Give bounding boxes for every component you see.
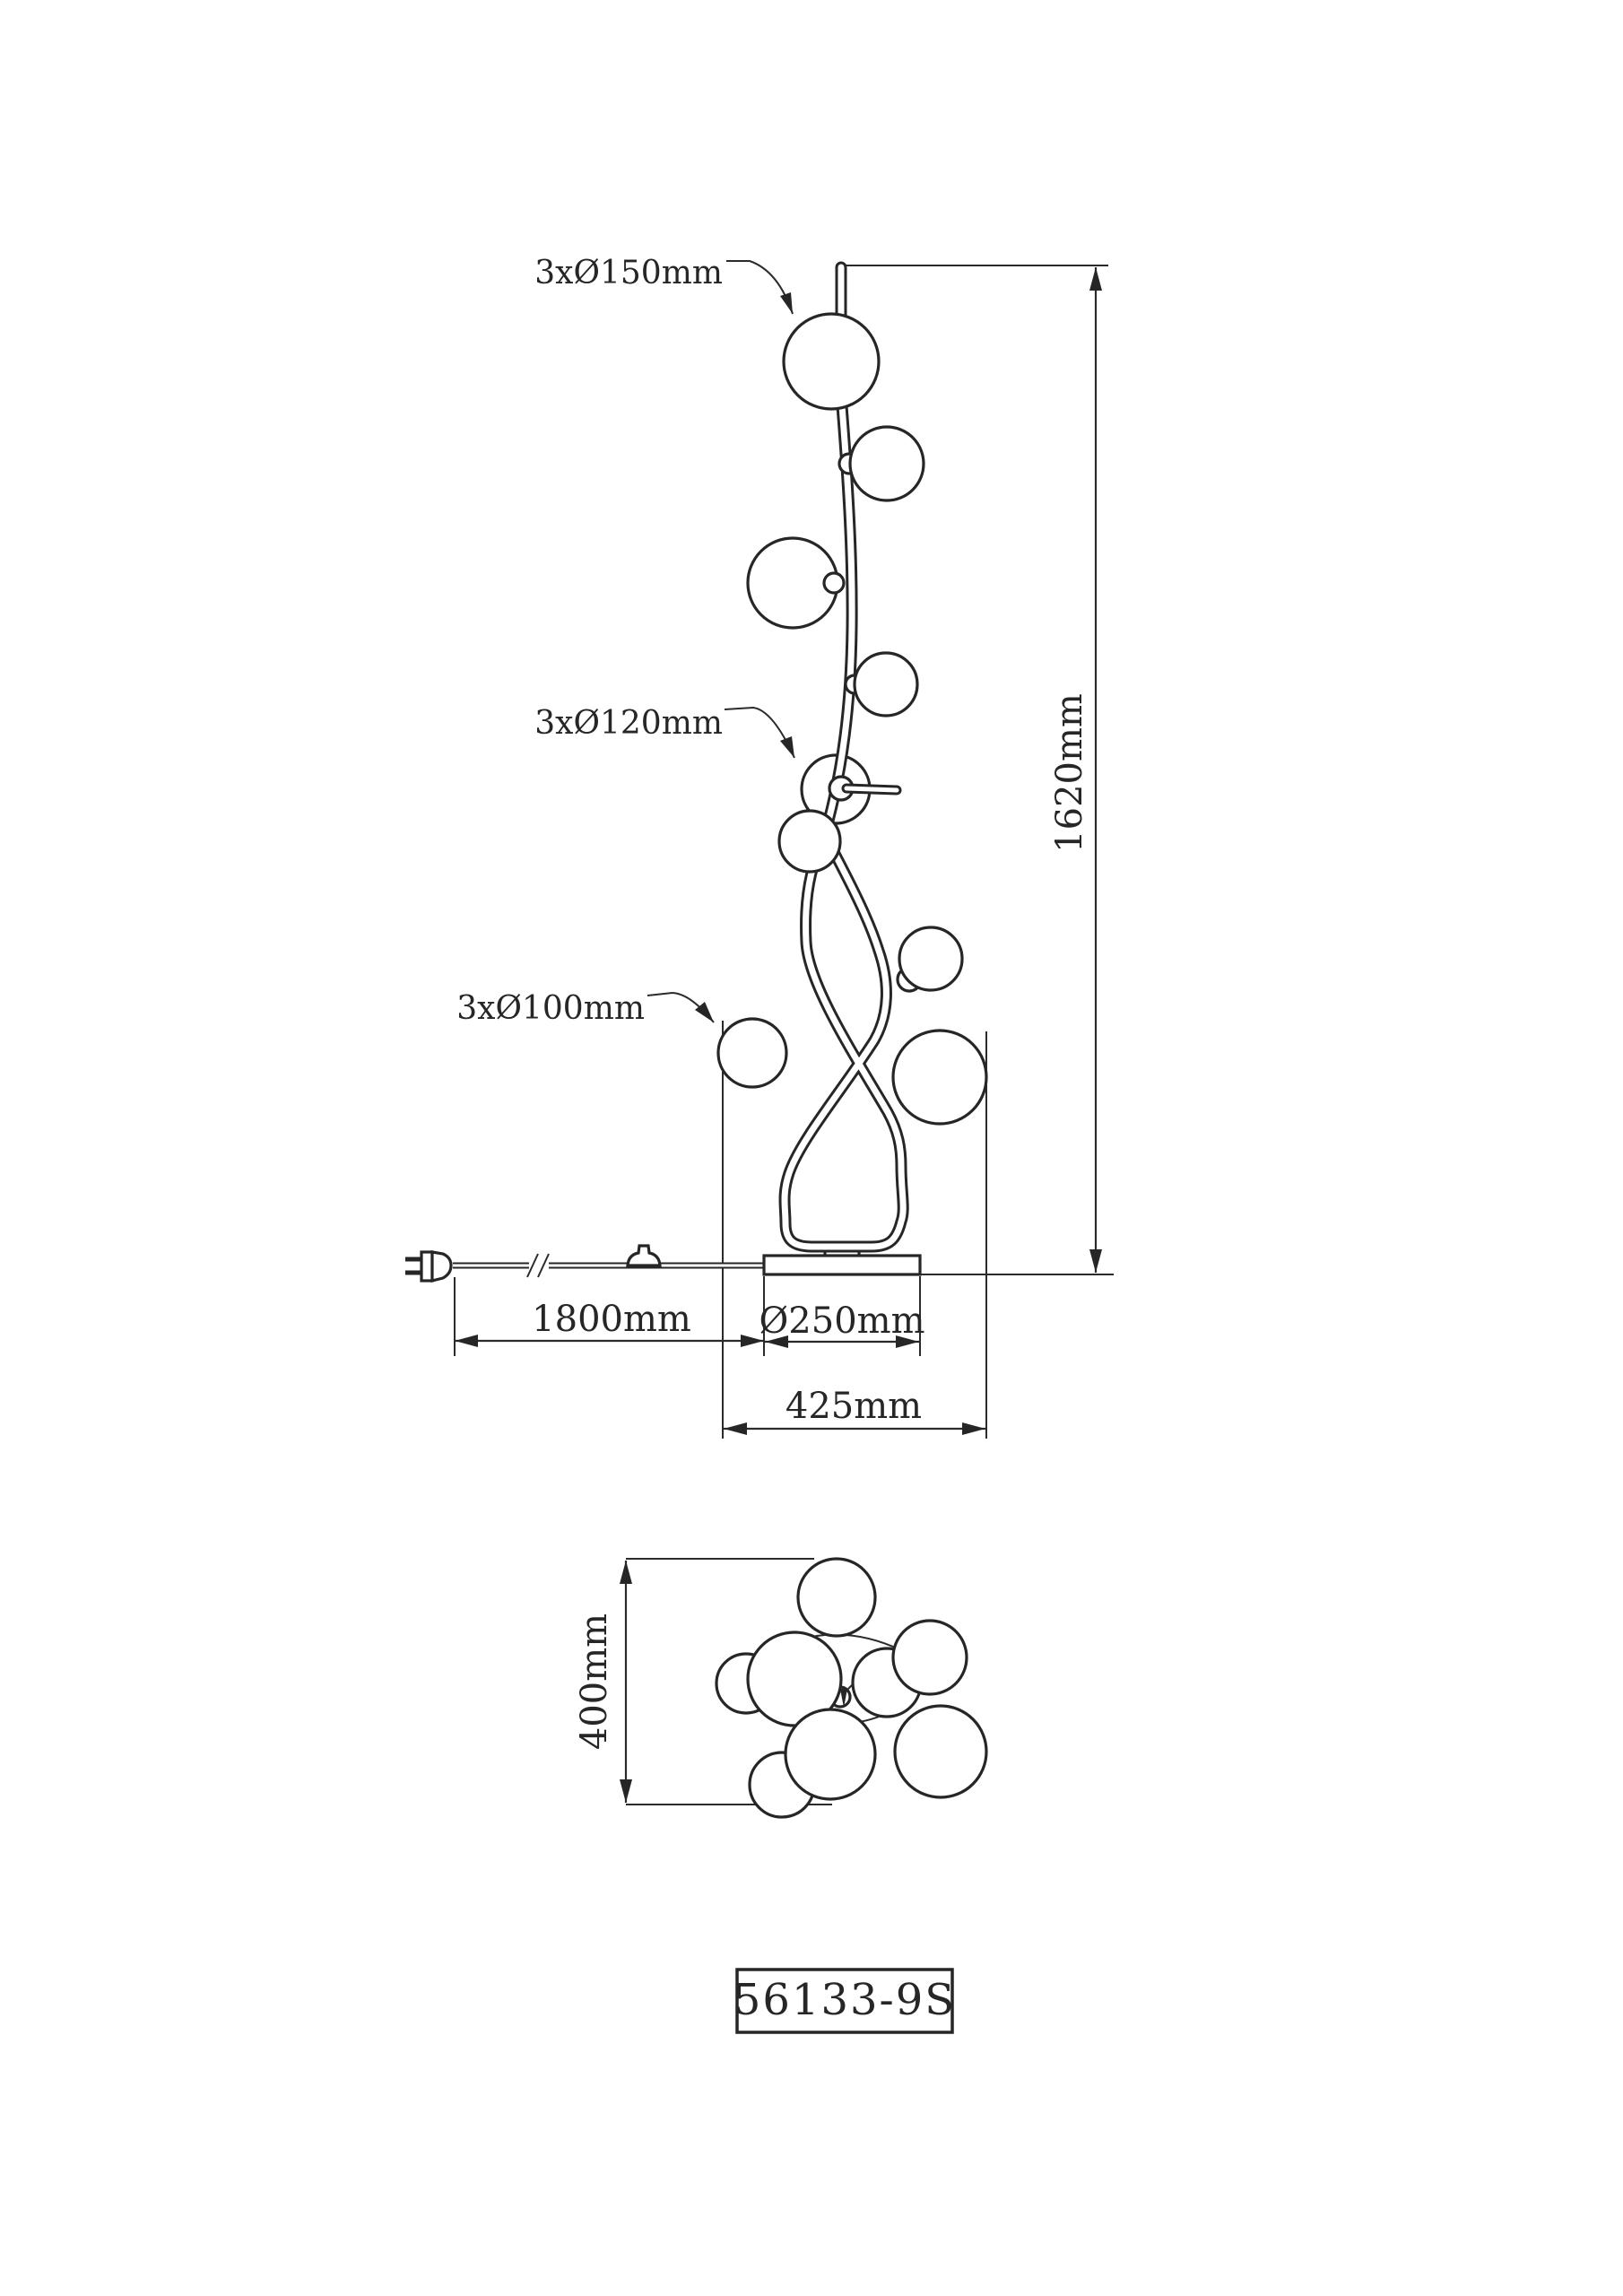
model-label: 56133-9S: [733, 1970, 956, 2032]
glass-sphere-150: [784, 314, 879, 409]
model-number-text: 56133-9S: [733, 1975, 956, 2025]
arrowhead-right-icon: [962, 1422, 985, 1435]
top-view: 400mm: [574, 1559, 986, 1817]
callout-100: 3xØ100mm: [456, 990, 714, 1027]
glass-sphere-top: [798, 1559, 875, 1636]
label-150-text: 3xØ150mm: [534, 255, 723, 291]
technical-drawing-page: 1620mm 1800mm Ø250mm 425mm: [0, 0, 1623, 2296]
glass-sphere-top: [893, 1621, 967, 1694]
arrowhead-left-icon: [455, 1335, 478, 1347]
front-view: 1620mm 1800mm Ø250mm 425mm: [405, 255, 1114, 1439]
lamp-pole: [785, 267, 903, 1247]
width-dim-text: 425mm: [785, 1386, 922, 1427]
arrowhead-down-icon: [620, 1779, 632, 1803]
glass-sphere-100: [899, 927, 962, 990]
glass-sphere-top: [785, 1709, 875, 1799]
lamp-arm-rod: [846, 788, 897, 790]
cable-dimension: 1800mm: [455, 1299, 764, 1347]
inline-switch: [628, 1246, 660, 1265]
label-120-text: 3xØ120mm: [534, 705, 723, 742]
glass-sphere-100: [718, 1019, 786, 1087]
glass-sphere-120: [850, 427, 924, 500]
label-100-text: 3xØ100mm: [456, 990, 645, 1027]
power-plug-icon: [432, 1252, 451, 1281]
width-dimension: 425mm: [724, 1386, 985, 1435]
leader-arrowhead-icon: [780, 736, 794, 758]
glass-sphere-150: [893, 1031, 986, 1124]
arrowhead-up-icon: [1089, 267, 1102, 291]
height-dim-text: 1620mm: [1049, 693, 1090, 853]
glass-sphere-100: [855, 653, 917, 716]
leader-line: [725, 708, 794, 758]
plug-body: [421, 1252, 432, 1281]
base-diameter-dimension: Ø250mm: [759, 1300, 925, 1348]
base-dim-text: Ø250mm: [759, 1300, 925, 1342]
arrowhead-down-icon: [1089, 1249, 1102, 1273]
arrowhead-up-icon: [620, 1561, 632, 1584]
mounting-socket: [824, 573, 844, 593]
callout-120: 3xØ120mm: [534, 705, 794, 758]
arrowhead-left-icon: [724, 1422, 747, 1435]
depth-dim-text: 400mm: [574, 1613, 615, 1750]
leader-line: [726, 261, 793, 314]
glass-sphere-100: [779, 811, 840, 872]
lamp-dimension-drawing: 1620mm 1800mm Ø250mm 425mm: [0, 0, 1623, 2296]
height-dimension: 1620mm: [1049, 267, 1102, 1273]
base-plate: [764, 1256, 920, 1274]
power-cable-assembly: [405, 1246, 764, 1281]
glass-sphere-top: [895, 1706, 986, 1797]
callout-150: 3xØ150mm: [534, 255, 793, 314]
leader-arrowhead-icon: [780, 292, 793, 314]
arm-rod-core: [846, 788, 897, 790]
cable-dim-text: 1800mm: [532, 1299, 691, 1340]
